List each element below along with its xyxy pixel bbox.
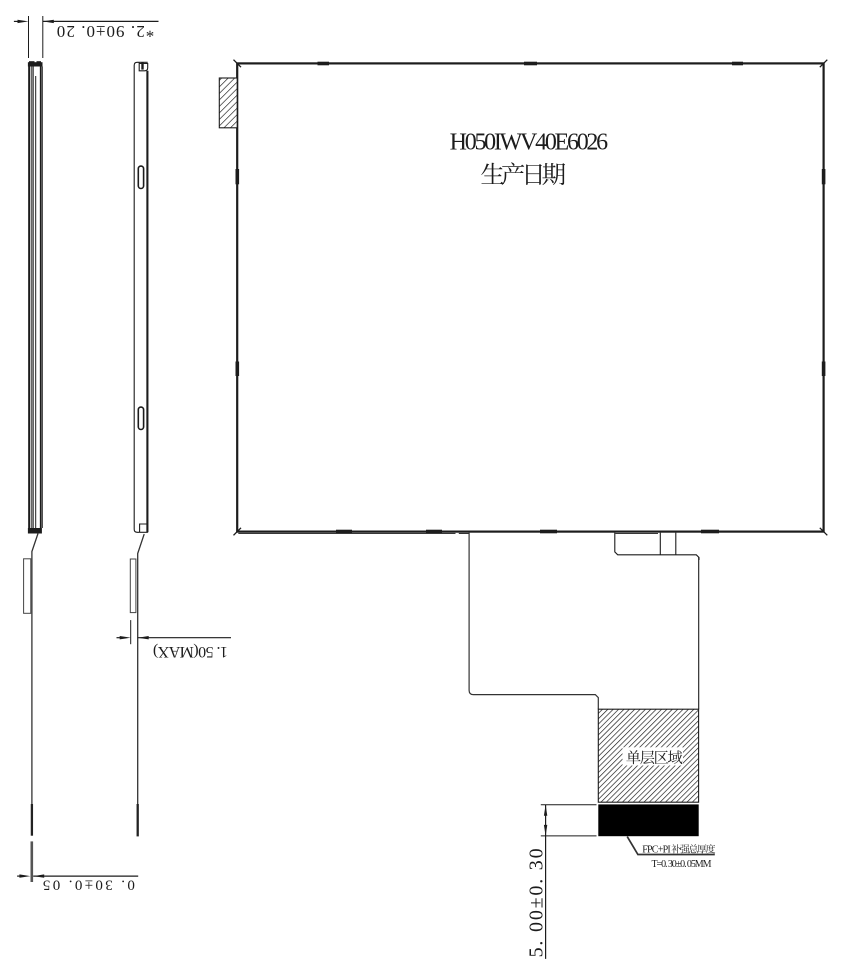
svg-text:T=0. 30±0. 05MM: T=0. 30±0. 05MM	[652, 859, 712, 870]
svg-text:5. 00±0. 30: 5. 00±0. 30	[526, 848, 548, 957]
svg-text:H050IWV40E6026: H050IWV40E6026	[450, 130, 609, 156]
svg-text:*2. 90±0. 20: *2. 90±0. 20	[57, 22, 155, 41]
svg-text:FPC+PI: FPC+PI	[642, 844, 671, 855]
svg-text:1. 50(MAX): 1. 50(MAX)	[153, 643, 228, 660]
